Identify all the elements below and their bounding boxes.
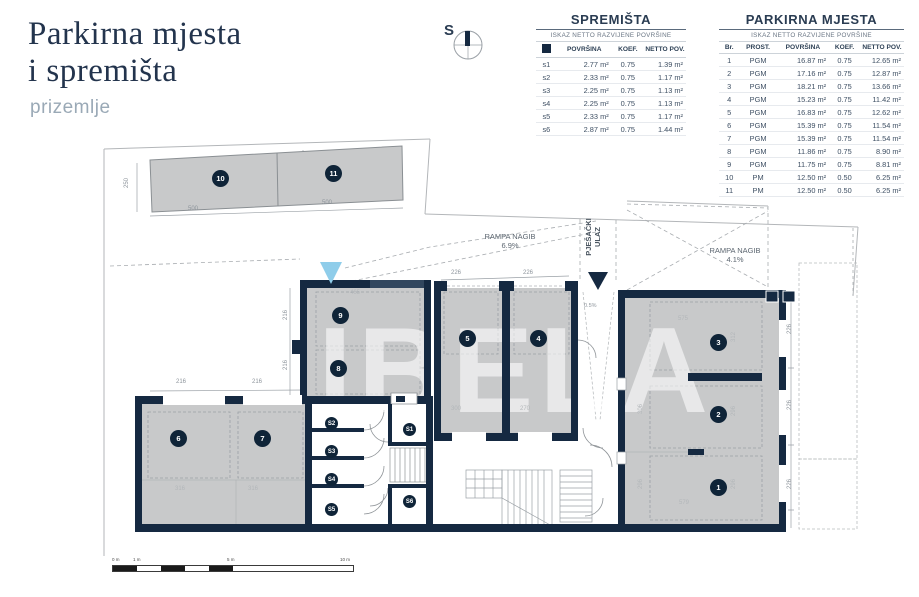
badge-parking-2: 2 [710,406,727,423]
table-cell: 0.75 [612,123,644,136]
table-cell: 12.65 m² [860,54,904,67]
table-cell: 2.25 m² [557,84,612,97]
table-cell: 15.39 m² [777,119,829,132]
page: IBELA [0,0,919,597]
column-header: PROST. [739,42,776,54]
table-cell: 2.87 m² [557,123,612,136]
table-cell: 11.42 m² [860,93,904,106]
ramp-edge [627,201,768,206]
pedestrian-label-line1: PJEŠAČKI [584,218,593,256]
table-cell: PGM [739,106,776,119]
badge-storage-s3: S3 [325,445,338,458]
parkirna-table-subtitle: ISKAZ NETTO RAZVIJENE POVRŠINE [719,30,904,42]
table-cell: s6 [536,123,557,136]
dim-label: 500 [188,206,198,212]
table-cell: 2.25 m² [557,97,612,110]
table-cell: 0.75 [829,80,860,93]
dim-label: 465 [350,290,360,296]
table-cell: s5 [536,110,557,123]
dim-label: 216 [283,360,289,370]
column-header: NETTO POV. [644,42,686,58]
table-cell: 1.39 m² [644,58,686,71]
parking-strip-10-11 [137,146,403,216]
table-row: s32.25 m²0.751.13 m² [536,84,686,97]
column-header: KOEF. [612,42,644,58]
table-cell: 3 [719,80,739,93]
table-cell: 11.86 m² [777,145,829,158]
dim-label: 306 [638,404,644,414]
table-row: 11PM12.50 m²0.506.25 m² [719,184,904,197]
table-cell: 0.75 [612,110,644,123]
table-row: 4PGM15.23 m²0.7511.42 m² [719,93,904,106]
dim-label: 296 [731,406,737,416]
badge-storage-s6: S6 [403,495,416,508]
table-row: 6PGM15.39 m²0.7511.54 m² [719,119,904,132]
parkirna-table-title: PARKIRNA MJESTA [719,12,904,30]
table-cell: 8.90 m² [860,145,904,158]
table-cell: 17.16 m² [777,67,829,80]
table-cell: 0.75 [829,119,860,132]
ramp-note-2-value: 4.1% [726,255,743,264]
badge-parking-6: 6 [170,430,187,447]
table-cell: PGM [739,158,776,171]
table-cell: 18.21 m² [777,80,829,93]
table-cell: 0.75 [829,106,860,119]
table-row: 9PGM11.75 m²0.758.81 m² [719,158,904,171]
scale-tick-5: 5 m [227,557,235,562]
table-cell: 0.75 [612,71,644,84]
table-cell: 0.50 [829,171,860,184]
table-cell: PM [739,184,776,197]
table-cell: 1.17 m² [644,71,686,84]
dim-label: 226 [451,270,461,276]
table-cell: 1.13 m² [644,97,686,110]
dim-label: 579 [679,500,689,506]
table-row: s62.87 m²0.751.44 m² [536,123,686,136]
spremista-table-title: SPREMIŠTA [536,12,686,30]
table-row: s52.33 m²0.751.17 m² [536,110,686,123]
table-cell: 6.25 m² [860,171,904,184]
badge-parking-1: 1 [710,479,727,496]
table-cell: s3 [536,84,557,97]
table-cell: 16.87 m² [777,54,829,67]
table-row: 7PGM15.39 m²0.7511.54 m² [719,132,904,145]
column-header: NETTO POV. [860,42,904,54]
table-cell: 6.25 m² [860,184,904,197]
scale-tick-10: 10 m [340,557,350,562]
dim-label: 270 [520,406,530,412]
table-row: s42.25 m²0.751.13 m² [536,97,686,110]
table-cell: 5 [719,106,739,119]
slope-label: 0.5% [584,303,597,309]
table-cell: 1 [719,54,739,67]
table-header-row: POVRŠINA KOEF. NETTO POV. [536,42,686,58]
staircase-large [466,470,592,526]
page-title-line2: i spremišta [28,53,242,90]
pedestrian-label-line2: ULAZ [593,227,602,247]
table-cell: 1.13 m² [644,84,686,97]
table-cell: 0.75 [829,54,860,67]
page-subtitle: prizemlje [30,97,111,119]
table-row: 1PGM16.87 m²0.7512.65 m² [719,54,904,67]
table-cell: 16.83 m² [777,106,829,119]
table-cell: 4 [719,93,739,106]
badge-parking-8: 8 [330,360,347,377]
table-cell: 7 [719,132,739,145]
table-cell: 11.54 m² [860,132,904,145]
table-row: 3PGM18.21 m²0.7513.66 m² [719,80,904,93]
table-row: 2PGM17.16 m²0.7512.87 m² [719,67,904,80]
table-header-row: Br. PROST. POVRŠINA KOEF. NETTO POV. [719,42,904,54]
table-cell: 0.75 [612,84,644,97]
table-cell: 11 [719,184,739,197]
table-cell: 15.23 m² [777,93,829,106]
table-cell: 10 [719,171,739,184]
dim-label: 250 [124,178,130,188]
dim-label: 316 [248,486,258,492]
compass-north-label: S [444,22,454,39]
table-cell: 0.75 [829,132,860,145]
table-cell: 0.75 [829,67,860,80]
table-cell: 2.77 m² [557,58,612,71]
table-cell: 6 [719,119,739,132]
column-header: POVRŠINA [557,42,612,58]
dim-label: 226 [787,324,793,334]
scale-tick-0: 0 m [112,557,120,562]
scale-tick-1: 1 m [133,557,141,562]
table-cell: s2 [536,71,557,84]
table-cell: 0.50 [829,184,860,197]
table-cell: 11.54 m² [860,119,904,132]
badge-parking-7: 7 [254,430,271,447]
ramp-note-1: RAMPA NAGIB 6.9% [455,232,565,251]
table-cell: s4 [536,97,557,110]
table-cell: 0.75 [829,158,860,171]
badge-parking-3: 3 [710,334,727,351]
dim-label: 300 [451,406,461,412]
ramp-note-2: RAMPA NAGIB 4.1% [680,246,790,265]
table-cell: PGM [739,145,776,158]
table-cell: PGM [739,54,776,67]
table-row: 5PGM16.83 m²0.7512.62 m² [719,106,904,119]
badge-storage-s5: S5 [325,503,338,516]
table-cell: 8.81 m² [860,158,904,171]
table-cell: 15.39 m² [777,132,829,145]
badge-parking-11: 11 [325,165,342,182]
table-cell: 12.62 m² [860,106,904,119]
table-row: s12.77 m²0.751.39 m² [536,58,686,71]
dim-label: 216 [283,310,289,320]
dim-label: 316 [175,486,185,492]
table-cell: 11.75 m² [777,158,829,171]
column-header: KOEF. [829,42,860,54]
dim-label: 296 [638,479,644,489]
table-cell: 13.66 m² [860,80,904,93]
table-cell: 2.33 m² [557,110,612,123]
dim-label: 216 [252,379,262,385]
badge-parking-9: 9 [332,307,349,324]
ramp-note-1-value: 6.9% [501,241,518,250]
dim-label: 312 [731,332,737,342]
table-cell: 9 [719,158,739,171]
table-cell: 0.75 [829,93,860,106]
table-cell: 2.33 m² [557,71,612,84]
table-cell: 0.75 [612,58,644,71]
table-cell: PGM [739,119,776,132]
pedestrian-entrance-label: PJEŠAČKI ULAZ [584,197,602,277]
column-header: POVRŠINA [777,42,829,54]
dim-label: 226 [787,479,793,489]
table-cell: PGM [739,67,776,80]
table-cell: 0.75 [829,145,860,158]
dim-label: 500 [322,200,332,206]
spremista-table: SPREMIŠTA ISKAZ NETTO RAZVIJENE POVRŠINE… [536,12,686,136]
dim-label: 226 [787,400,793,410]
table-row: 8PGM11.86 m²0.758.90 m² [719,145,904,158]
table-cell: 12.50 m² [777,184,829,197]
table-cell: 2 [719,67,739,80]
badge-storage-s4: S4 [325,473,338,486]
parkirna-table: PARKIRNA MJESTA ISKAZ NETTO RAZVIJENE PO… [719,12,904,197]
staircase-small [390,448,430,482]
watermark: IBELA [318,302,714,438]
ramp-note-1-label: RAMPA NAGIB [484,232,535,241]
table-cell: 1.17 m² [644,110,686,123]
scale-bar-segments [112,565,354,572]
dim-label: 226 [523,270,533,276]
column-header: Br. [719,42,739,54]
table-cell: 8 [719,145,739,158]
page-title: Parkirna mjesta i spremišta [28,16,242,90]
spremista-table-subtitle: ISKAZ NETTO RAZVIJENE POVRŠINE [536,30,686,42]
table-row: 10PM12.50 m²0.506.25 m² [719,171,904,184]
table-cell: 0.75 [612,97,644,110]
table-cell: 12.50 m² [777,171,829,184]
table-cell: PGM [739,132,776,145]
table-row: s22.33 m²0.751.17 m² [536,71,686,84]
table-cell: PM [739,171,776,184]
table-cell: 1.44 m² [644,123,686,136]
badge-storage-s2: S2 [325,417,338,430]
north-compass-icon [454,31,482,59]
badge-storage-s1: S1 [403,423,416,436]
dim-label: 216 [176,379,186,385]
page-title-line1: Parkirna mjesta [28,16,242,53]
badge-parking-4: 4 [530,330,547,347]
dim-label: 575 [678,316,688,322]
table-cell: s1 [536,58,557,71]
dim-label: 296 [731,479,737,489]
table-cell: 12.87 m² [860,67,904,80]
badge-parking-5: 5 [459,330,476,347]
ramp-note-2-label: RAMPA NAGIB [709,246,760,255]
storage-marker-icon [536,42,557,58]
badge-parking-10: 10 [212,170,229,187]
scale-bar: 0 m 1 m 5 m 10 m [112,557,354,575]
table-cell: PGM [739,80,776,93]
table-cell: PGM [739,93,776,106]
